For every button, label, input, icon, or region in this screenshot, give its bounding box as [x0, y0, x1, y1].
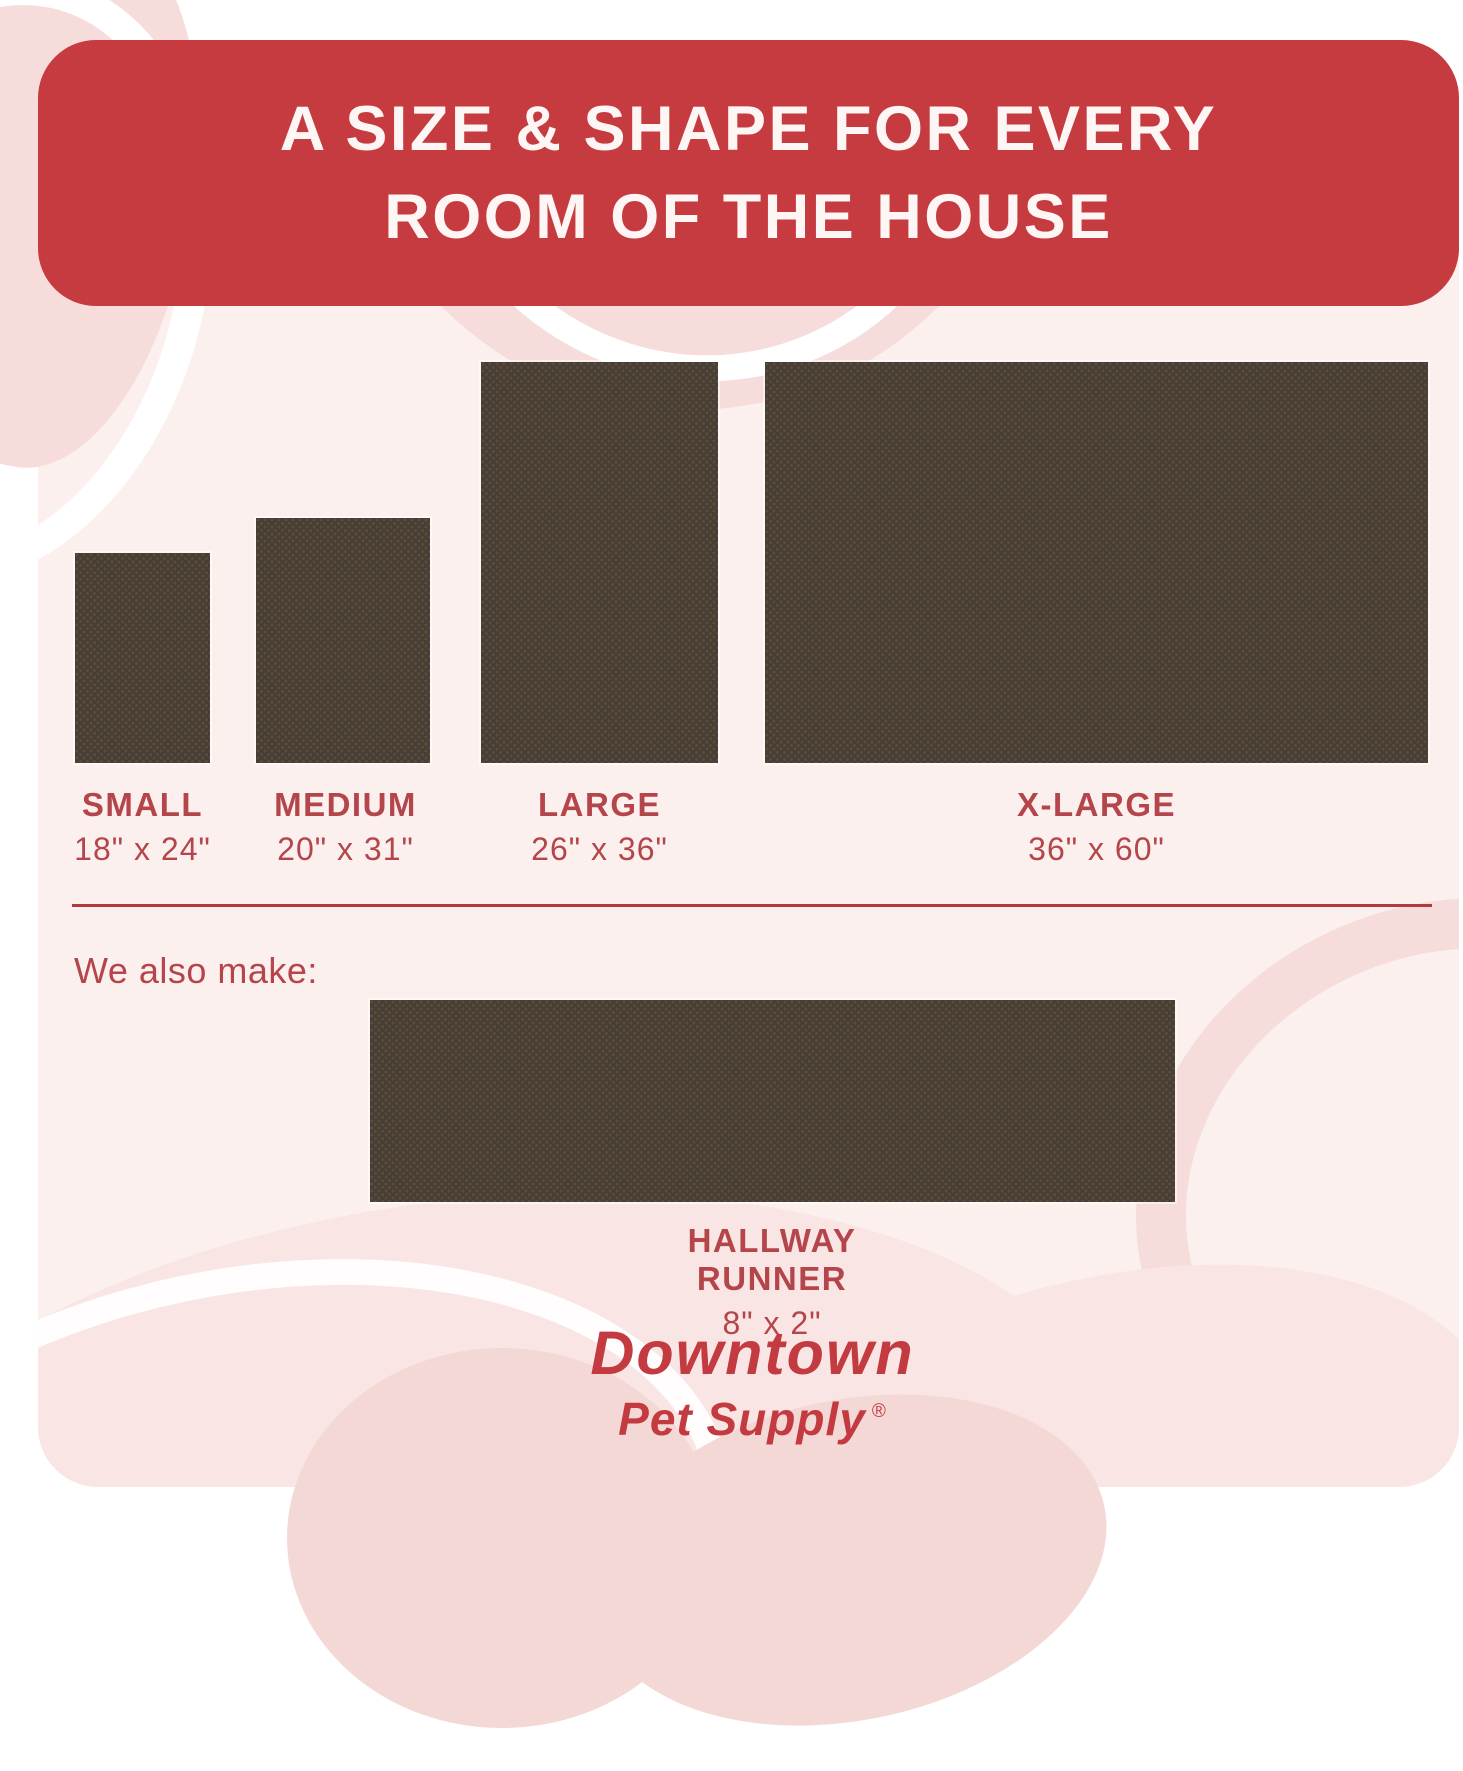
header-banner: A SIZE & SHAPE FOR EVERY ROOM OF THE HOU… — [38, 40, 1459, 306]
header-title-line2: ROOM OF THE HOUSE — [384, 173, 1113, 261]
brand-name: Downtown — [495, 1318, 1010, 1388]
section-divider — [72, 904, 1432, 907]
size-dims-small: 18" x 24" — [40, 831, 245, 868]
size-name-xlarge: X-LARGE — [994, 786, 1199, 824]
also-make-text: We also make: — [74, 950, 318, 992]
rug-hallway-runner — [370, 1000, 1175, 1202]
size-name-hallway-runner: HALLWAY RUNNER — [622, 1222, 922, 1298]
header-title-line1: A SIZE & SHAPE FOR EVERY — [280, 85, 1217, 173]
rug-xlarge — [765, 362, 1428, 763]
size-dims-xlarge: 36" x 60" — [994, 831, 1199, 868]
size-name-small: SMALL — [40, 786, 245, 824]
size-dims-medium: 20" x 31" — [243, 831, 448, 868]
registered-trademark-symbol: ® — [872, 1401, 887, 1422]
rug-large — [481, 362, 718, 763]
label-xlarge: X-LARGE 36" x 60" — [994, 786, 1199, 868]
rug-small — [75, 553, 210, 763]
infographic-page: { "header": { "title_line1": "A SIZE & S… — [0, 0, 1463, 1500]
brand-subtitle-text: Pet Supply — [618, 1393, 866, 1445]
rug-medium — [256, 518, 430, 763]
size-dims-large: 26" x 36" — [497, 831, 702, 868]
brand-logo: Downtown Pet Supply® — [495, 1318, 1010, 1446]
label-large: LARGE 26" x 36" — [497, 786, 702, 868]
brand-subtitle: Pet Supply® — [495, 1392, 1010, 1446]
label-medium: MEDIUM 20" x 31" — [243, 786, 448, 868]
size-name-large: LARGE — [497, 786, 702, 824]
label-small: SMALL 18" x 24" — [40, 786, 245, 868]
size-name-medium: MEDIUM — [243, 786, 448, 824]
